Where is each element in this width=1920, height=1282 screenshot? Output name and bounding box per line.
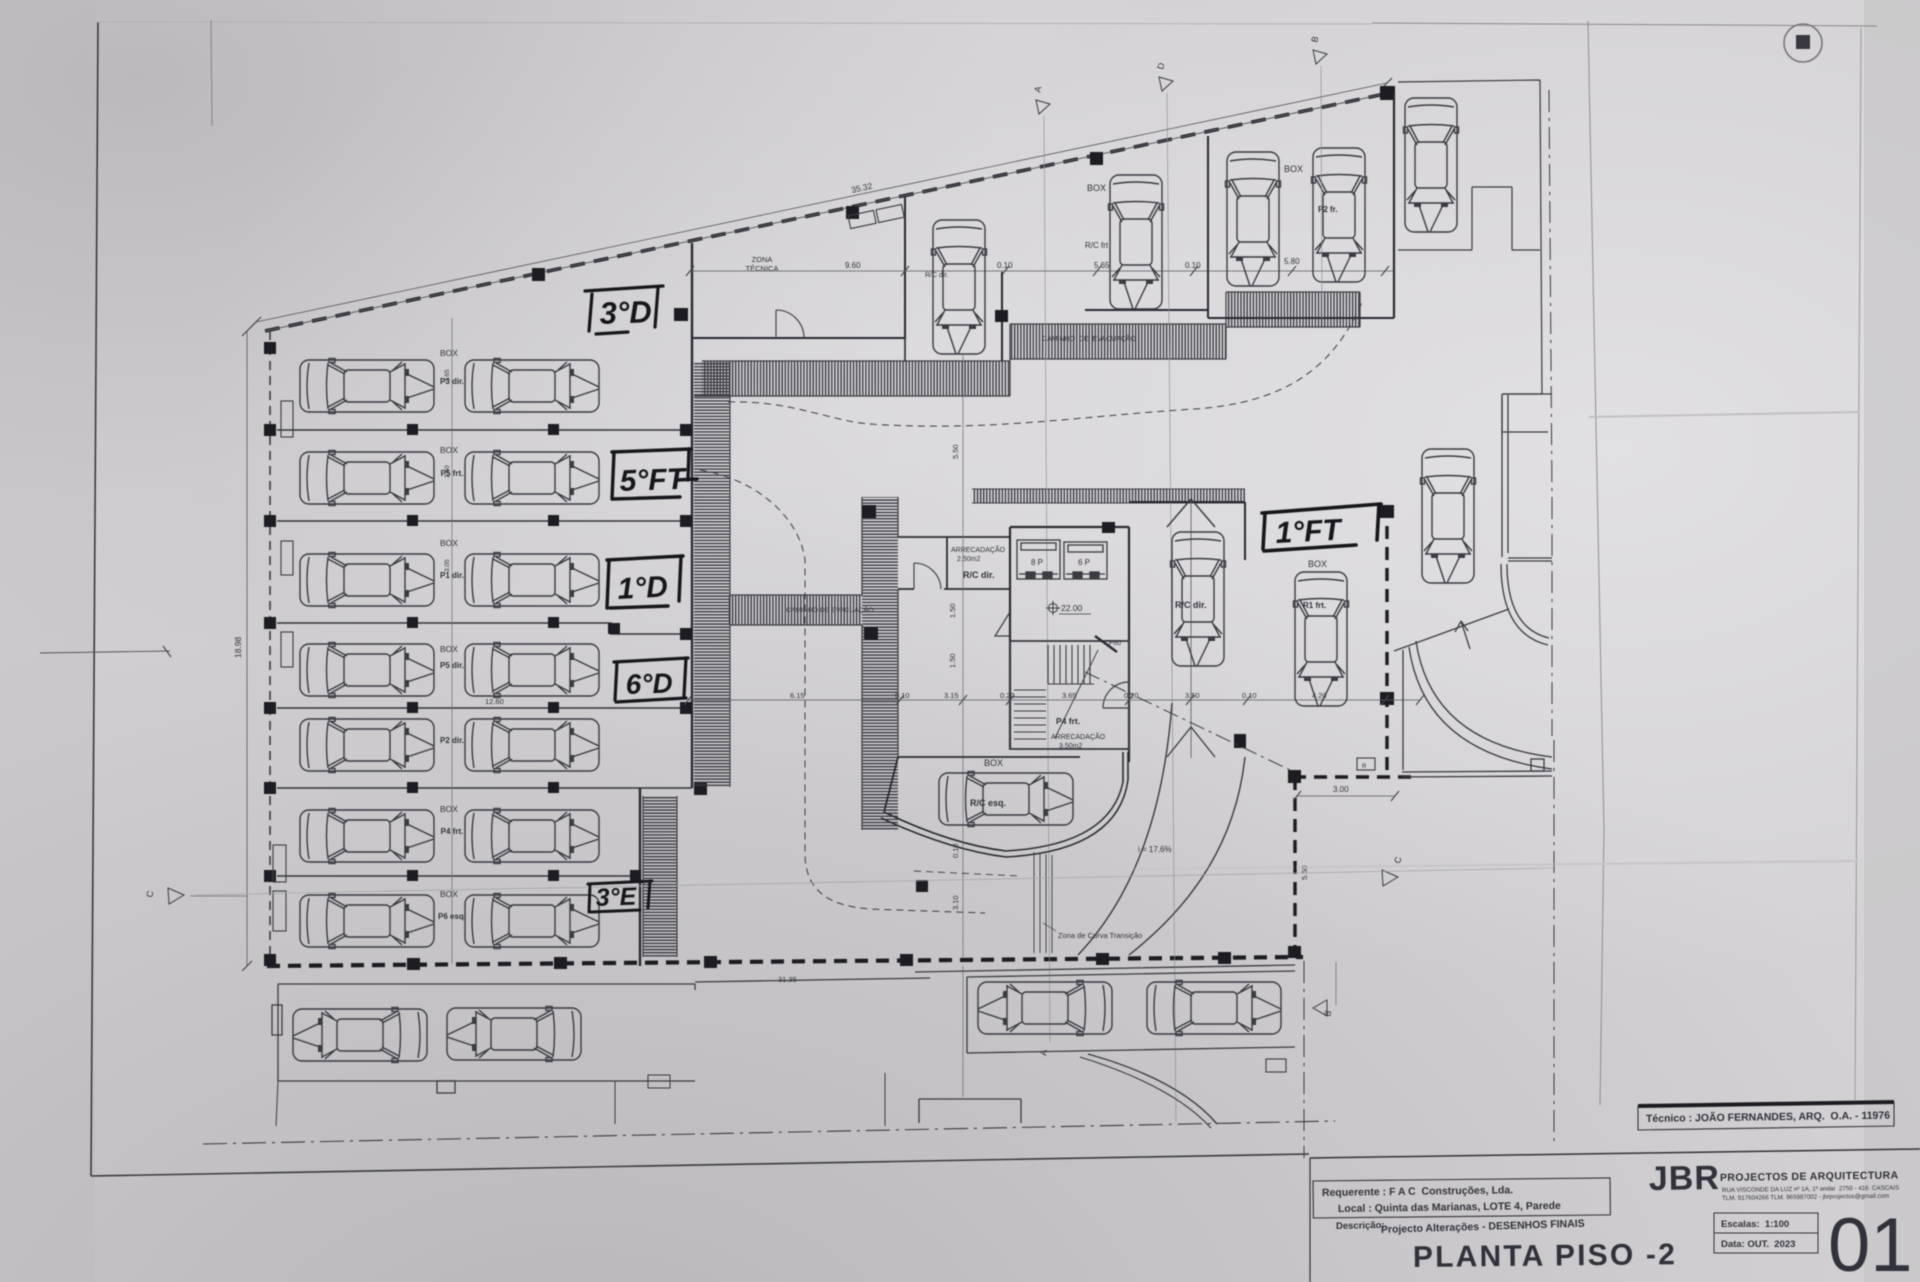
svg-text:0.20: 0.20 bbox=[1124, 691, 1139, 700]
svg-text:CF60: CF60 bbox=[1104, 640, 1121, 647]
svg-text:3.65: 3.65 bbox=[444, 369, 451, 382]
svg-text:PROJECTOS DE ARQUITECTURA: PROJECTOS DE ARQUITECTURA bbox=[1720, 1170, 1899, 1184]
svg-text:CAMINHO DE EVACUAÇÃO: CAMINHO DE EVACUAÇÃO bbox=[786, 605, 874, 614]
svg-text:Escalas: 1:100: Escalas: 1:100 bbox=[1721, 1219, 1789, 1230]
svg-text:BOX: BOX bbox=[1284, 164, 1303, 174]
svg-text:1.50: 1.50 bbox=[948, 603, 957, 618]
svg-text:P4 frt.: P4 frt. bbox=[441, 827, 464, 836]
svg-text:Data: OUT. 2023: Data: OUT. 2023 bbox=[1721, 1239, 1795, 1250]
svg-text:BOX: BOX bbox=[440, 348, 458, 358]
svg-text:R1 frt.: R1 frt. bbox=[1303, 601, 1326, 610]
svg-text:3.50: 3.50 bbox=[1185, 691, 1200, 700]
svg-text:Descrição:: Descrição: bbox=[1336, 1220, 1385, 1232]
svg-text:P6 esq.: P6 esq. bbox=[438, 912, 466, 921]
svg-text:1°FT: 1°FT bbox=[1275, 513, 1345, 550]
svg-text:R/C frt: R/C frt bbox=[1085, 241, 1109, 250]
svg-text:6.15: 6.15 bbox=[790, 691, 805, 700]
svg-text:3.10: 3.10 bbox=[951, 895, 960, 910]
svg-text:3°E: 3°E bbox=[595, 883, 638, 912]
svg-text:3.00: 3.00 bbox=[1333, 785, 1349, 794]
svg-text:JBR: JBR bbox=[1649, 1159, 1721, 1198]
svg-text:BOX: BOX bbox=[984, 758, 1003, 768]
svg-text:3.05: 3.05 bbox=[444, 559, 451, 572]
svg-text:5°FT: 5°FT bbox=[619, 463, 688, 498]
svg-text:0.10: 0.10 bbox=[1185, 261, 1201, 270]
svg-text:BOX: BOX bbox=[1087, 183, 1106, 193]
svg-text:TÉCNICA: TÉCNICA bbox=[746, 264, 779, 273]
svg-text:18.98: 18.98 bbox=[233, 636, 243, 658]
svg-text:12.60: 12.60 bbox=[485, 697, 504, 706]
svg-text:3°D: 3°D bbox=[599, 294, 652, 331]
svg-text:6 P: 6 P bbox=[1078, 558, 1090, 567]
svg-text:R: R bbox=[1362, 764, 1367, 770]
svg-text:2.50m2: 2.50m2 bbox=[957, 556, 980, 563]
svg-text:Zona de Curva Transição: Zona de Curva Transição bbox=[1058, 931, 1142, 940]
svg-text:ARRECADAÇÃO: ARRECADAÇÃO bbox=[951, 545, 1006, 554]
svg-text:5.65: 5.65 bbox=[1094, 261, 1110, 270]
svg-text:BOX: BOX bbox=[440, 445, 458, 455]
svg-text:31.35: 31.35 bbox=[778, 975, 797, 984]
svg-text:i = 17.6%: i = 17.6% bbox=[1138, 845, 1172, 854]
svg-text:5.50: 5.50 bbox=[951, 444, 960, 459]
svg-text:P4 frt.: P4 frt. bbox=[1056, 716, 1080, 726]
svg-text:2.50: 2.50 bbox=[444, 465, 451, 478]
svg-text:22.00: 22.00 bbox=[1061, 603, 1083, 613]
svg-text:R/C esq.: R/C esq. bbox=[970, 798, 1006, 808]
svg-text:R/C dir.: R/C dir. bbox=[1175, 600, 1207, 610]
svg-text:8 P: 8 P bbox=[1031, 558, 1043, 567]
svg-text:PLANTA PISO -2: PLANTA PISO -2 bbox=[1413, 1238, 1677, 1274]
svg-text:3.50m2: 3.50m2 bbox=[1059, 743, 1082, 750]
svg-text:BOX: BOX bbox=[440, 889, 458, 899]
svg-text:5.80: 5.80 bbox=[1284, 257, 1300, 266]
svg-text:BOX: BOX bbox=[440, 644, 458, 654]
svg-text:ARRECADAÇÃO: ARRECADAÇÃO bbox=[1051, 732, 1106, 741]
svg-text:3.65: 3.65 bbox=[1062, 691, 1077, 700]
svg-text:P5 dir.: P5 dir. bbox=[440, 661, 464, 670]
svg-text:1°D: 1°D bbox=[617, 570, 669, 606]
svg-text:ZONA: ZONA bbox=[752, 255, 773, 264]
svg-text:R/C dir.: R/C dir. bbox=[963, 570, 995, 580]
svg-text:0.10: 0.10 bbox=[997, 261, 1013, 270]
svg-text:01: 01 bbox=[1828, 1203, 1913, 1282]
svg-text:BOX: BOX bbox=[1308, 559, 1327, 569]
svg-text:9.60: 9.60 bbox=[845, 261, 861, 270]
svg-text:0.10: 0.10 bbox=[1242, 691, 1257, 700]
svg-text:P2 fr.: P2 fr. bbox=[1318, 205, 1338, 214]
svg-text:BOX: BOX bbox=[440, 538, 458, 548]
svg-text:3.15: 3.15 bbox=[944, 691, 959, 700]
svg-text:1.50: 1.50 bbox=[948, 653, 957, 668]
svg-text:P2 dir.: P2 dir. bbox=[440, 736, 464, 745]
svg-text:BOX: BOX bbox=[440, 804, 458, 814]
svg-text:0.10: 0.10 bbox=[895, 691, 910, 700]
svg-text:0.20: 0.20 bbox=[1000, 691, 1015, 700]
svg-text:6°D: 6°D bbox=[625, 667, 673, 700]
svg-text:R/C dir.: R/C dir. bbox=[925, 272, 948, 279]
svg-text:CAMINHO DE EVACUAÇÃO: CAMINHO DE EVACUAÇÃO bbox=[1042, 334, 1137, 343]
